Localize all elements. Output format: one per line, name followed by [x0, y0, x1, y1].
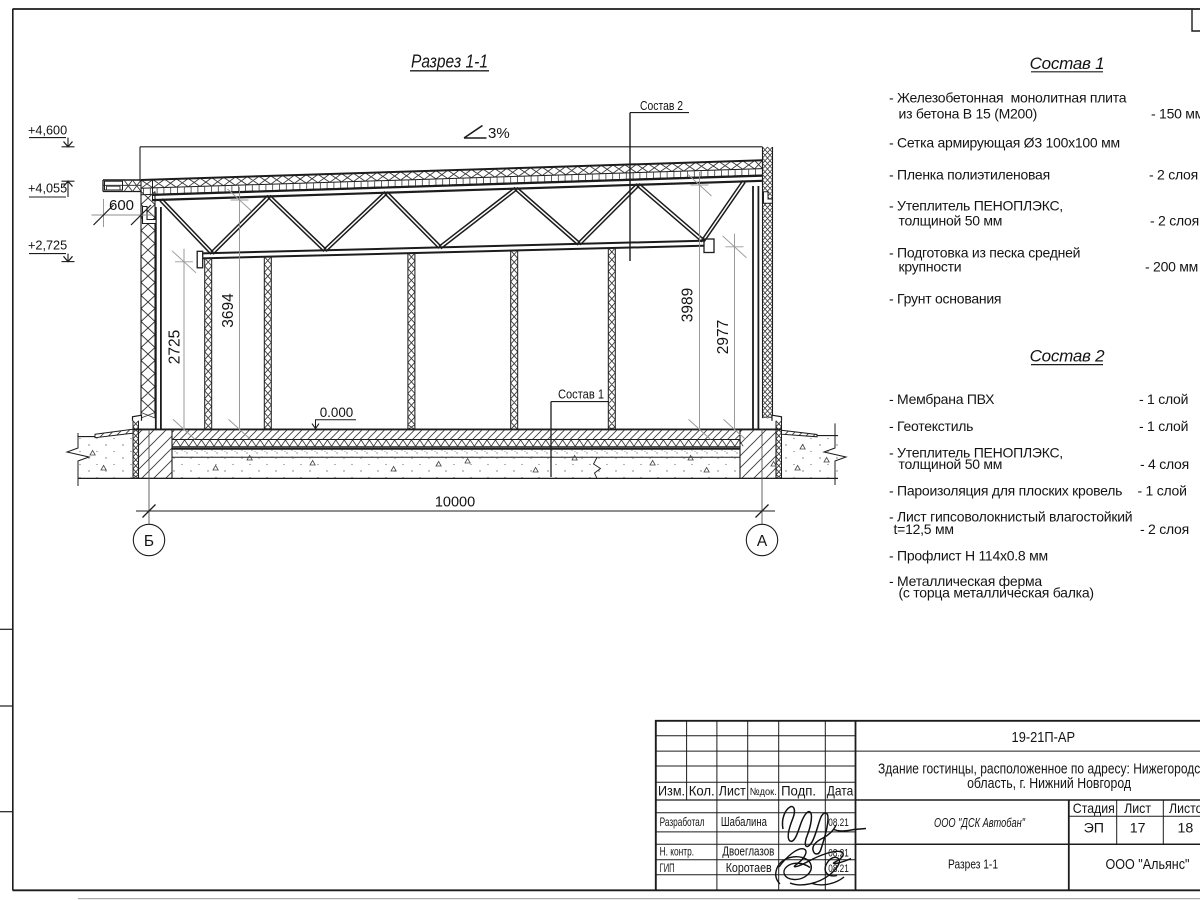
svg-text:Состав 2: Состав 2: [640, 98, 683, 113]
svg-text:№док.: №док.: [750, 787, 777, 798]
svg-text:толщиной 50 мм: толщиной 50 мм: [899, 212, 1003, 228]
svg-text:+2,725: +2,725: [28, 239, 67, 253]
svg-text:3%: 3%: [488, 125, 510, 142]
svg-text:Листов: Листов: [1169, 801, 1200, 816]
svg-text:- Утеплитель ПЕНОПЛЭКС,: - Утеплитель ПЕНОПЛЭКС,: [889, 197, 1063, 213]
svg-text:2977: 2977: [715, 320, 732, 354]
svg-text:Состав 2: Состав 2: [1030, 347, 1106, 366]
svg-text:17: 17: [1130, 821, 1146, 837]
svg-text:ООО "Альянс": ООО "Альянс": [1106, 856, 1190, 873]
svg-text:Лист: Лист: [1124, 801, 1152, 816]
svg-text:- 2 слоя: - 2 слоя: [1140, 521, 1189, 537]
svg-text:Двоеглазов: Двоеглазов: [722, 845, 774, 859]
svg-text:- 150 мм: - 150 мм: [1151, 105, 1200, 121]
svg-text:- Профлист Н 114х0.8 мм: - Профлист Н 114х0.8 мм: [889, 547, 1048, 563]
svg-text:Разрез 1-1: Разрез 1-1: [948, 856, 998, 871]
svg-text:А: А: [757, 533, 768, 550]
svg-text:- Железобетонная монолитная п: - Железобетонная монолитная плита: [889, 89, 1127, 105]
svg-text:Н. контр.: Н. контр.: [660, 845, 695, 859]
svg-text:Лист: Лист: [719, 784, 747, 799]
svg-text:Кол.: Кол.: [689, 784, 715, 799]
svg-text:t=12,5 мм: t=12,5 мм: [894, 521, 954, 537]
svg-text:- Геотекстиль: - Геотекстиль: [889, 418, 973, 434]
svg-text:Изм.: Изм.: [658, 784, 685, 799]
svg-text:10000: 10000: [435, 495, 475, 511]
svg-text:из бетона В 15 (М200): из бетона В 15 (М200): [899, 105, 1038, 121]
svg-text:Разрез 1-1: Разрез 1-1: [411, 52, 488, 72]
svg-text:- 1 слой: - 1 слой: [1139, 391, 1188, 407]
svg-text:08.21: 08.21: [828, 847, 849, 859]
svg-text:Стадия: Стадия: [1073, 801, 1115, 816]
svg-text:толщиной 50 мм: толщиной 50 мм: [899, 456, 1003, 472]
svg-text:область, г. Нижний Новгород: область, г. Нижний Новгород: [967, 776, 1131, 792]
svg-text:2725: 2725: [167, 330, 184, 364]
svg-text:- 200 мм: - 200 мм: [1145, 258, 1198, 274]
svg-text:ГИП: ГИП: [660, 861, 675, 875]
svg-text:- 4 слоя: - 4 слоя: [1140, 456, 1189, 472]
svg-text:- 1 слой: - 1 слой: [1139, 418, 1188, 434]
svg-text:+4,600: +4,600: [28, 124, 67, 138]
svg-text:08.21: 08.21: [828, 817, 849, 829]
svg-text:0.000: 0.000: [320, 405, 354, 420]
svg-text:19-21П-АР: 19-21П-АР: [1012, 730, 1076, 746]
svg-text:- Мембрана ПВХ: - Мембрана ПВХ: [889, 391, 995, 407]
svg-text:3989: 3989: [680, 288, 697, 322]
svg-text:- Пароизоляция для плоских кро: - Пароизоляция для плоских кровель: [889, 482, 1122, 498]
svg-text:- 2 слоя: - 2 слоя: [1149, 166, 1198, 182]
svg-text:Коротаев: Коротаев: [726, 861, 772, 875]
svg-text:крупности: крупности: [899, 258, 962, 274]
svg-text:Подп.: Подп.: [781, 784, 816, 799]
svg-text:- 2 слоя: - 2 слоя: [1150, 212, 1199, 228]
svg-text:Разработал: Разработал: [660, 815, 705, 829]
svg-text:Шабалина: Шабалина: [721, 815, 767, 829]
svg-text:Б: Б: [144, 533, 154, 550]
svg-text:+4,055: +4,055: [28, 182, 67, 196]
svg-text:- Сетка армирующая Ø3 100х100: - Сетка армирующая Ø3 100х100 мм: [889, 134, 1120, 150]
svg-text:Здание гостинцы, расположенное: Здание гостинцы, расположенное по адресу…: [878, 762, 1200, 778]
svg-text:18: 18: [1178, 821, 1194, 837]
svg-text:- Грунт основания: - Грунт основания: [889, 290, 1001, 306]
svg-text:Состав 1: Состав 1: [558, 387, 604, 402]
svg-text:- 1 слой: - 1 слой: [1138, 482, 1187, 498]
svg-text:Состав 1: Состав 1: [1030, 54, 1105, 73]
svg-text:ЭП: ЭП: [1084, 821, 1104, 837]
svg-text:ООО "ДСК Автобан": ООО "ДСК Автобан": [934, 815, 1026, 830]
svg-text:(с торца металлическая балка): (с торца металлическая балка): [899, 584, 1094, 600]
svg-text:600: 600: [109, 197, 134, 214]
svg-text:- Пленка полиэтиленовая: - Пленка полиэтиленовая: [889, 166, 1050, 182]
svg-text:Дата: Дата: [827, 784, 854, 799]
svg-text:3694: 3694: [220, 293, 237, 328]
